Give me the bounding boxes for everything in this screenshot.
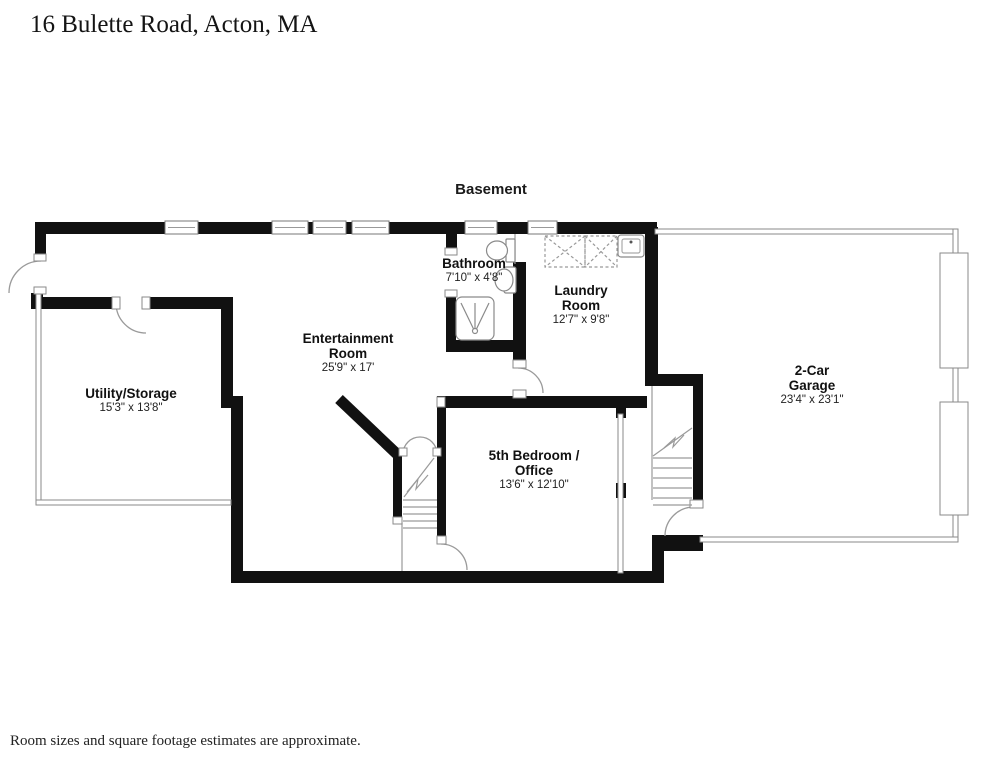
wall-segment xyxy=(146,297,233,309)
door-jamb xyxy=(513,360,526,368)
room-dimensions: 7'10" x 4'8" xyxy=(442,271,506,285)
room-name-line2: Garage xyxy=(780,378,843,393)
room-label-bathroom: Bathroom 7'10" x 4'8" xyxy=(442,256,506,285)
door-jamb xyxy=(445,248,457,255)
room-name-line2: Office xyxy=(489,463,580,478)
winder-line xyxy=(653,428,692,456)
door-jamb xyxy=(690,500,703,508)
room-name: 2-Car xyxy=(780,363,843,378)
room-name: Laundry xyxy=(553,283,610,298)
diagonal-wall xyxy=(339,399,399,456)
door-jamb xyxy=(34,287,46,294)
garage-door xyxy=(940,402,968,515)
room-name: Entertainment xyxy=(303,331,394,346)
door-jamb xyxy=(142,297,150,309)
thin-wall xyxy=(700,537,958,542)
door-jamb xyxy=(445,290,457,297)
room-name: Utility/Storage xyxy=(85,386,177,401)
break-mark xyxy=(664,435,684,448)
stairs-garage-side xyxy=(653,428,692,505)
room-label-bedroom-office: 5th Bedroom / Office 13'6" x 12'10" xyxy=(489,448,580,492)
shower-icon xyxy=(456,297,494,340)
stairs-bedroom-side xyxy=(403,458,437,528)
door-jamb xyxy=(393,517,402,524)
door-jamb xyxy=(437,397,445,407)
fixtures xyxy=(456,235,644,340)
room-name: Bathroom xyxy=(442,256,506,271)
wall-segment xyxy=(231,571,663,583)
room-label-utility-storage: Utility/Storage 15'3" x 13'8" xyxy=(85,386,177,415)
door-jamb xyxy=(34,254,46,261)
laundry-sink-icon xyxy=(618,235,644,257)
wall-segment xyxy=(31,297,118,309)
bedroom-door-arc xyxy=(441,544,467,570)
wall-segment xyxy=(693,380,703,503)
page-title: 16 Bulette Road, Acton, MA xyxy=(30,11,317,39)
wall-segment xyxy=(231,396,243,583)
floorplan-page: 16 Bulette Road, Acton, MA Basement Util… xyxy=(0,0,984,758)
laundry-door-arc xyxy=(518,368,543,393)
room-label-entertainment-room: Entertainment Room 25'9" x 17' xyxy=(303,331,394,375)
room-name-line2: Room xyxy=(303,346,394,361)
thin-wall xyxy=(36,500,231,505)
disclaimer-text: Room sizes and square footage estimates … xyxy=(10,733,361,750)
thin-wall xyxy=(618,414,623,573)
wall-segment xyxy=(221,297,233,403)
room-dimensions: 15'3" x 13'8" xyxy=(85,401,177,415)
thin-wall xyxy=(655,229,958,234)
wall-segment xyxy=(446,295,456,346)
door-jamb xyxy=(399,448,407,456)
room-label-laundry-room: Laundry Room 12'7" x 9'8" xyxy=(553,283,610,327)
room-dimensions: 12'7" x 9'8" xyxy=(553,313,610,327)
floor-label: Basement xyxy=(455,181,527,198)
room-dimensions: 23'4" x 23'1" xyxy=(780,393,843,407)
room-name-line2: Room xyxy=(553,298,610,313)
door-jamb xyxy=(112,297,120,309)
garage-entry-door-arc xyxy=(665,507,694,536)
wall-segment xyxy=(437,403,446,538)
room-name: 5th Bedroom / xyxy=(489,448,580,463)
door-jamb xyxy=(433,448,441,456)
wall-segment xyxy=(652,540,664,583)
wall-segment xyxy=(35,222,46,258)
door-jamb xyxy=(437,536,446,544)
thin-wall xyxy=(36,293,41,505)
room-label-garage: 2-Car Garage 23'4" x 23'1" xyxy=(780,363,843,407)
room-dimensions: 25'9" x 17' xyxy=(303,361,394,375)
wall-segment xyxy=(645,227,658,376)
door-jamb xyxy=(513,390,526,398)
wall-segment xyxy=(393,451,402,523)
wall-segment xyxy=(437,396,647,408)
room-dimensions: 13'6" x 12'10" xyxy=(489,478,580,492)
washer-dryer-icon xyxy=(545,236,617,267)
garage-door xyxy=(940,253,968,368)
